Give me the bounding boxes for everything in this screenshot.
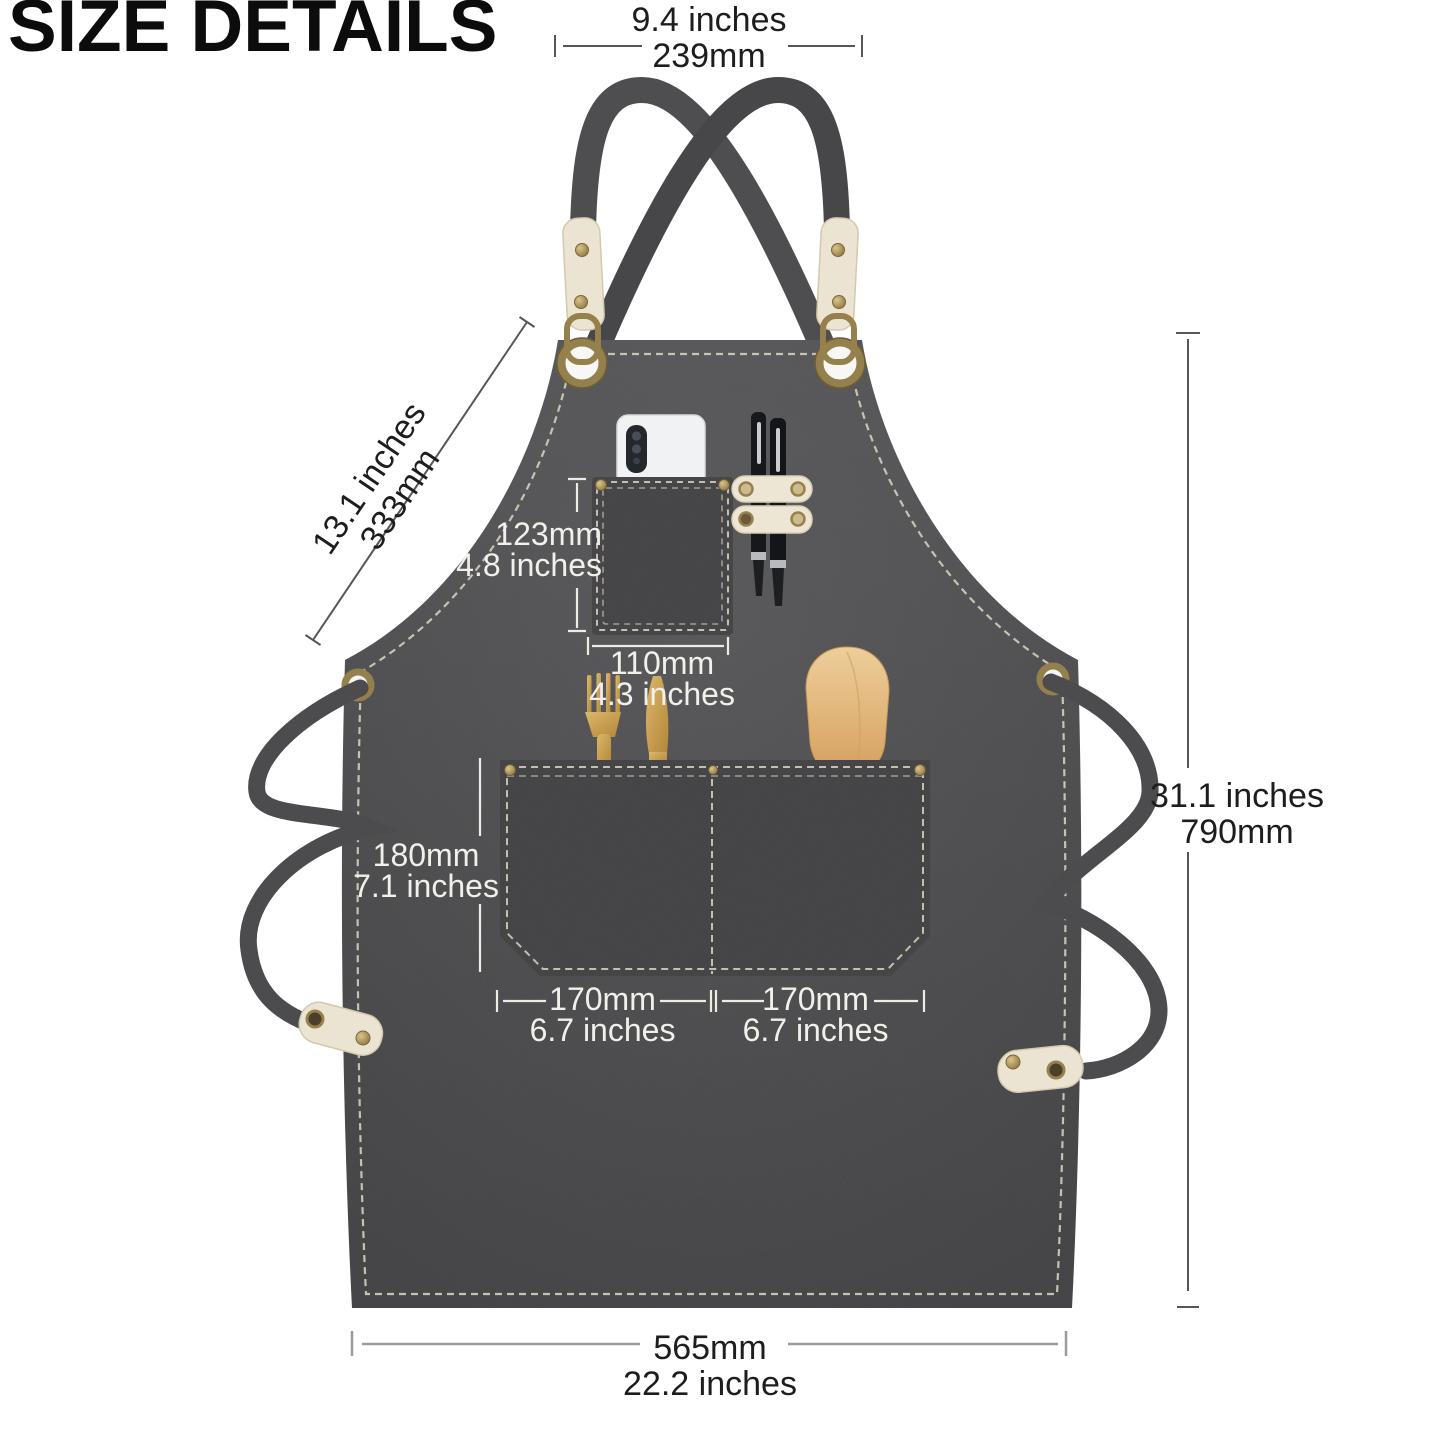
eyelet xyxy=(792,483,805,496)
rivet xyxy=(915,765,926,776)
eyelet xyxy=(307,1011,323,1027)
rivet xyxy=(505,765,516,776)
dim-bottom-width-label: 565mm 22.2 inches xyxy=(560,1330,860,1402)
value-inches: 9.4 inches xyxy=(559,2,859,38)
eyelet xyxy=(792,513,805,526)
value-mm: 180mm xyxy=(342,840,510,871)
value-mm: 110mm xyxy=(582,648,742,679)
page-title: SIZE DETAILS xyxy=(8,0,497,63)
dim-strap-top-width-label: 9.4 inches 239mm xyxy=(559,2,859,74)
dim-front-pocket-right-width-label: 170mm 6.7 inches xyxy=(733,984,898,1046)
chest-pocket xyxy=(592,477,733,635)
dim-apron-length-label: 31.1 inches 790mm xyxy=(1142,778,1332,850)
phone xyxy=(617,415,705,487)
rivet xyxy=(833,296,846,309)
value-inches: 4.3 inches xyxy=(582,679,742,710)
rivet xyxy=(832,244,845,257)
value-mm: 170mm xyxy=(520,984,685,1015)
apron-illustration xyxy=(0,0,1451,1436)
eyelet xyxy=(1048,1062,1064,1078)
dim-chest-pocket-width-label: 110mm 4.3 inches xyxy=(582,648,742,710)
value-mm: 790mm xyxy=(1142,814,1332,850)
dim-chest-pocket-height-label: 123mm 4.8 inches xyxy=(448,519,602,581)
rivet xyxy=(576,244,589,257)
eyelet xyxy=(740,483,753,496)
front-pocket xyxy=(500,760,930,976)
rivet xyxy=(709,766,718,775)
rivet xyxy=(575,296,588,309)
value-mm: 565mm xyxy=(560,1330,860,1366)
eyelet xyxy=(740,513,753,526)
rivet xyxy=(719,480,730,491)
rivet xyxy=(596,480,607,491)
value-inches: 31.1 inches xyxy=(1142,778,1332,814)
dim-front-pocket-height-label: 180mm 7.1 inches xyxy=(342,840,510,902)
spatula xyxy=(806,647,889,769)
rivet xyxy=(356,1031,370,1045)
value-inches: 22.2 inches xyxy=(560,1366,860,1402)
value-mm: 170mm xyxy=(733,984,898,1015)
value-mm: 123mm xyxy=(448,519,602,550)
value-inches: 6.7 inches xyxy=(733,1015,898,1046)
value-mm: 239mm xyxy=(559,38,859,74)
value-inches: 6.7 inches xyxy=(520,1015,685,1046)
rivet xyxy=(1006,1055,1020,1069)
dim-front-pocket-left-width-label: 170mm 6.7 inches xyxy=(520,984,685,1046)
size-details-figure: SIZE DETAILS 9.4 inches 239mm 13.1 inche… xyxy=(0,0,1451,1436)
shoulder-straps xyxy=(583,90,837,350)
value-inches: 7.1 inches xyxy=(342,871,510,902)
value-inches: 4.8 inches xyxy=(448,550,602,581)
